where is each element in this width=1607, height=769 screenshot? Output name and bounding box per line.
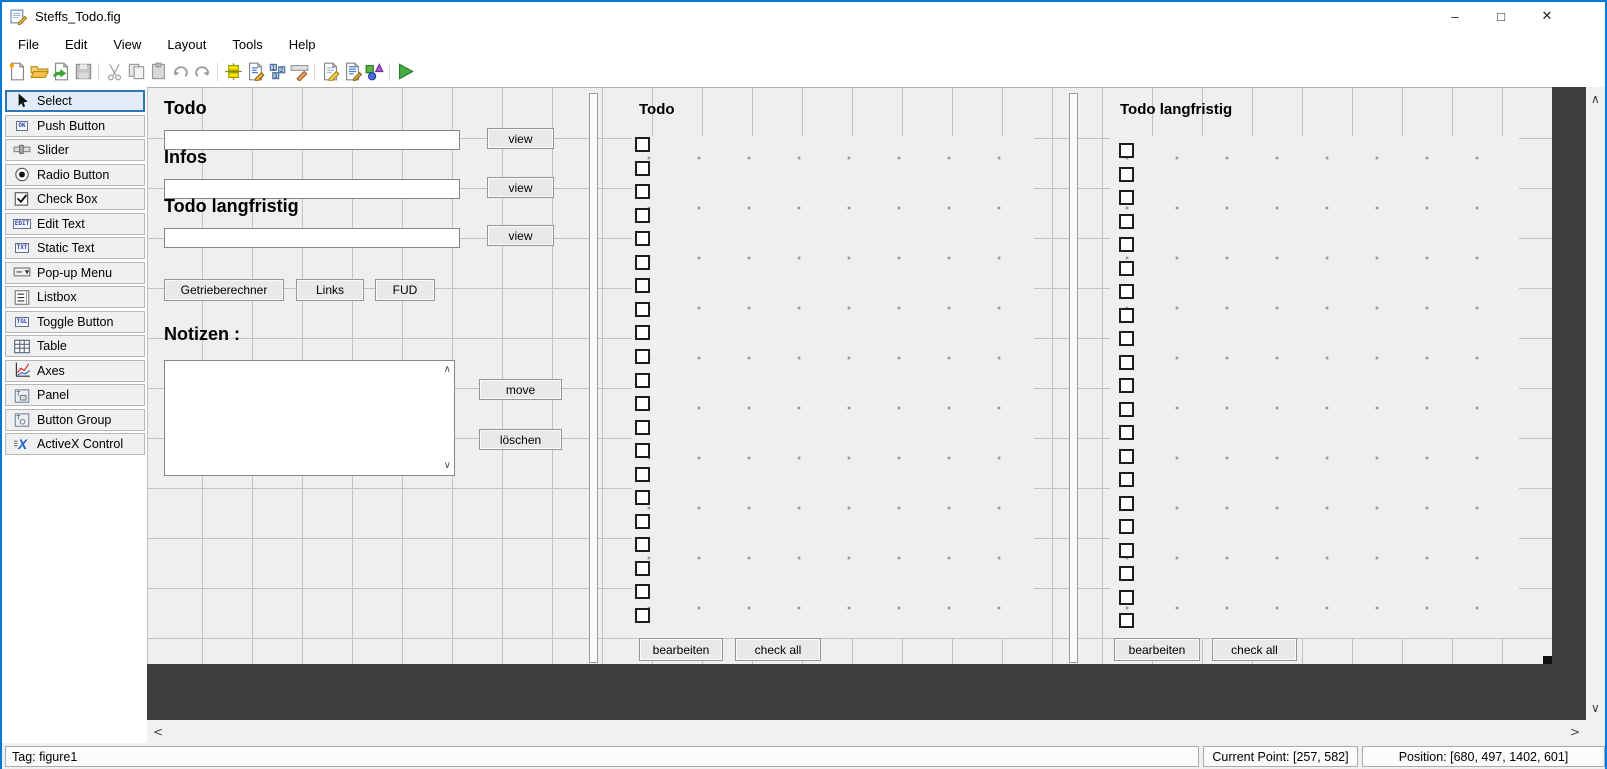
palette-item-edit-text[interactable]: EDITEdit Text bbox=[5, 213, 145, 235]
radio-button-icon bbox=[13, 167, 31, 182]
todo-checkbox[interactable] bbox=[635, 584, 650, 599]
menu-file[interactable]: File bbox=[5, 32, 52, 57]
palette-item-label: Panel bbox=[37, 388, 69, 402]
status-current-point: Current Point: [257, 582] bbox=[1203, 746, 1358, 767]
todo-long-check-all-button[interactable]: check all bbox=[1212, 638, 1297, 661]
status-position: Position: [680, 497, 1402, 601] bbox=[1362, 746, 1605, 767]
todo-long-checkbox[interactable] bbox=[1119, 331, 1134, 346]
listbox-scroll-up-icon[interactable]: ∧ bbox=[444, 365, 451, 375]
palette-item-panel[interactable]: TPanel bbox=[5, 384, 145, 406]
toolbar-separator bbox=[217, 63, 218, 81]
palette-item-slider[interactable]: Slider bbox=[5, 139, 145, 161]
toolbar: 123 bbox=[2, 58, 1605, 85]
palette-item-label: Check Box bbox=[37, 192, 97, 206]
toolbar-separator bbox=[389, 63, 390, 81]
svg-text:T: T bbox=[16, 415, 20, 422]
todo-long-checkbox[interactable] bbox=[1119, 402, 1134, 417]
palette-item-listbox[interactable]: Listbox bbox=[5, 286, 145, 308]
svg-text:2: 2 bbox=[279, 68, 282, 74]
todo-long-checkbox[interactable] bbox=[1119, 167, 1134, 182]
align-objects-icon[interactable] bbox=[222, 61, 244, 83]
menu-editor-icon[interactable] bbox=[244, 61, 266, 83]
todo-checkbox[interactable] bbox=[635, 514, 650, 529]
todo-checkbox[interactable] bbox=[635, 349, 650, 364]
popup-menu-icon bbox=[13, 265, 31, 280]
todo-checkbox[interactable] bbox=[635, 231, 650, 246]
todo-checkbox[interactable] bbox=[635, 467, 650, 482]
menu-edit[interactable]: Edit bbox=[52, 32, 100, 57]
push-button-icon: OK bbox=[13, 118, 31, 133]
run-icon[interactable] bbox=[394, 61, 416, 83]
svg-text:1: 1 bbox=[271, 66, 274, 72]
scroll-up-icon[interactable]: ∧ bbox=[1591, 93, 1600, 105]
infos-view-button[interactable]: view bbox=[487, 177, 554, 198]
activex-icon: X bbox=[13, 437, 31, 452]
todo-long-checkbox[interactable] bbox=[1119, 566, 1134, 581]
todo-long-checkbox[interactable] bbox=[1119, 613, 1134, 628]
save-icon bbox=[72, 61, 94, 83]
todo-checkbox[interactable] bbox=[635, 420, 650, 435]
scroll-down-icon[interactable]: ∨ bbox=[1591, 702, 1600, 714]
table-icon bbox=[13, 339, 31, 354]
palette-item-toggle-button[interactable]: TGLToggle Button bbox=[5, 311, 145, 333]
todo-long-bearbeiten-button[interactable]: bearbeiten bbox=[1114, 638, 1200, 661]
export-icon[interactable] bbox=[50, 61, 72, 83]
todo-panel-title[interactable]: Todo bbox=[639, 101, 675, 118]
palette-item-push-button[interactable]: OKPush Button bbox=[5, 115, 145, 137]
menu-layout[interactable]: Layout bbox=[154, 32, 219, 57]
todo-long-checkbox[interactable] bbox=[1119, 472, 1134, 487]
layout-area-background bbox=[147, 664, 1552, 720]
palette-item-static-text[interactable]: TXTStatic Text bbox=[5, 237, 145, 259]
palette-item-label: Toggle Button bbox=[37, 315, 113, 329]
palette-item-label: Listbox bbox=[37, 290, 77, 304]
palette-item-label: Pop-up Menu bbox=[37, 266, 112, 280]
todo-checkbox[interactable] bbox=[635, 561, 650, 576]
design-canvas[interactable]: Todo view Infos view Todo langfristig vi… bbox=[147, 87, 1552, 664]
panel-icon: T bbox=[13, 388, 31, 403]
app-icon bbox=[10, 8, 27, 25]
todo-long-view-button[interactable]: view bbox=[487, 225, 554, 246]
listbox-icon bbox=[13, 290, 31, 305]
todo-long-panel[interactable] bbox=[1110, 136, 1519, 638]
menu-help[interactable]: Help bbox=[276, 32, 329, 57]
todo-checkbox[interactable] bbox=[635, 161, 650, 176]
palette-item-label: Button Group bbox=[37, 413, 111, 427]
todo-checkbox[interactable] bbox=[635, 255, 650, 270]
palette-item-check-box[interactable]: Check Box bbox=[5, 188, 145, 210]
object-browser-icon[interactable] bbox=[363, 61, 385, 83]
status-bar: Tag: figure1 Current Point: [257, 582] P… bbox=[2, 743, 1605, 769]
property-inspector-icon[interactable] bbox=[341, 61, 363, 83]
todo-bearbeiten-button[interactable]: bearbeiten bbox=[639, 638, 723, 661]
todo-checkbox[interactable] bbox=[635, 184, 650, 199]
todo-long-checkbox[interactable] bbox=[1119, 378, 1134, 393]
infos-heading[interactable]: Infos bbox=[164, 147, 207, 168]
todo-checkbox[interactable] bbox=[635, 608, 650, 623]
menu-bar: FileEditViewLayoutToolsHelp bbox=[2, 31, 1605, 58]
axes-icon bbox=[13, 363, 31, 378]
scroll-left-icon[interactable]: < bbox=[153, 726, 163, 738]
scrollbar-corner bbox=[1586, 720, 1605, 743]
vertical-scrollbar[interactable]: ∧ ∨ bbox=[1586, 87, 1605, 720]
todo-long-edit-field[interactable] bbox=[164, 228, 460, 248]
todo-long-checkbox[interactable] bbox=[1119, 449, 1134, 464]
loeschen-button[interactable]: löschen bbox=[479, 429, 562, 450]
todo-checkbox[interactable] bbox=[635, 396, 650, 411]
todo-long-checkbox[interactable] bbox=[1119, 425, 1134, 440]
palette-item-axes[interactable]: Axes bbox=[5, 360, 145, 382]
vertical-separator-bar[interactable] bbox=[1069, 93, 1078, 663]
todo-panel[interactable] bbox=[632, 136, 1034, 638]
todo-checkbox[interactable] bbox=[635, 443, 650, 458]
todo-long-checkbox[interactable] bbox=[1119, 543, 1134, 558]
todo-long-checkbox[interactable] bbox=[1119, 143, 1134, 158]
todo-long-checkbox[interactable] bbox=[1119, 261, 1134, 276]
palette-item-label: Edit Text bbox=[37, 217, 85, 231]
check-box-icon bbox=[13, 192, 31, 207]
open-figure-icon[interactable] bbox=[28, 61, 50, 83]
slider-icon bbox=[13, 143, 31, 158]
listbox-scroll-down-icon[interactable]: ∨ bbox=[444, 461, 451, 471]
todo-long-checkbox[interactable] bbox=[1119, 519, 1134, 534]
toolbar-editor-icon[interactable] bbox=[288, 61, 310, 83]
toggle-button-icon: TGL bbox=[13, 314, 31, 329]
todo-view-button[interactable]: view bbox=[487, 128, 554, 149]
todo-checkbox[interactable] bbox=[635, 325, 650, 340]
todo-checkbox[interactable] bbox=[635, 537, 650, 552]
palette-item-table[interactable]: Table bbox=[5, 335, 145, 357]
palette-item-label: Push Button bbox=[37, 119, 105, 133]
redo-icon bbox=[191, 61, 213, 83]
palette-item-label: Slider bbox=[37, 143, 69, 157]
todo-long-checkbox[interactable] bbox=[1119, 214, 1134, 229]
links-button[interactable]: Links bbox=[296, 279, 364, 301]
todo-checkbox[interactable] bbox=[635, 373, 650, 388]
todo-checkbox[interactable] bbox=[635, 137, 650, 152]
palette-item-select[interactable]: Select bbox=[5, 90, 145, 112]
toolbar-separator bbox=[98, 63, 99, 81]
palette-item-label: Table bbox=[37, 339, 67, 353]
maximize-button[interactable]: □ bbox=[1478, 2, 1524, 30]
menu-view[interactable]: View bbox=[100, 32, 154, 57]
svg-text:X: X bbox=[17, 437, 28, 452]
fud-button[interactable]: FUD bbox=[375, 279, 435, 301]
button-group-icon: T bbox=[13, 412, 31, 427]
todo-long-checkbox[interactable] bbox=[1119, 284, 1134, 299]
todo-checkbox[interactable] bbox=[635, 208, 650, 223]
cut-icon bbox=[103, 61, 125, 83]
palette-item-button-group[interactable]: TButton Group bbox=[5, 409, 145, 431]
toolbar-separator bbox=[314, 63, 315, 81]
paste-icon bbox=[147, 61, 169, 83]
todo-long-panel-title[interactable]: Todo langfristig bbox=[1120, 101, 1232, 118]
palette-item-label: ActiveX Control bbox=[37, 437, 123, 451]
status-tag: Tag: figure1 bbox=[5, 746, 1199, 767]
layout-area-background bbox=[1552, 87, 1587, 720]
todo-checkbox[interactable] bbox=[635, 302, 650, 317]
close-button[interactable]: ✕ bbox=[1524, 2, 1570, 30]
menu-tools[interactable]: Tools bbox=[219, 32, 275, 57]
tool-palette: SelectOKPush ButtonSliderRadio ButtonChe… bbox=[5, 90, 145, 458]
todo-long-heading[interactable]: Todo langfristig bbox=[164, 196, 299, 217]
todo-long-checkbox[interactable] bbox=[1119, 237, 1134, 252]
editor-icon[interactable] bbox=[319, 61, 341, 83]
todo-long-checkbox[interactable] bbox=[1119, 496, 1134, 511]
new-figure-icon[interactable] bbox=[6, 61, 28, 83]
horizontal-scrollbar[interactable]: < > bbox=[147, 720, 1586, 743]
undo-icon bbox=[169, 61, 191, 83]
scroll-right-icon[interactable]: > bbox=[1570, 726, 1580, 738]
palette-item-label: Static Text bbox=[37, 241, 94, 255]
todo-heading[interactable]: Todo bbox=[164, 98, 207, 119]
todo-long-checkbox[interactable] bbox=[1119, 308, 1134, 323]
notizen-listbox[interactable]: ∧ ∨ bbox=[164, 360, 455, 476]
copy-icon bbox=[125, 61, 147, 83]
notizen-heading[interactable]: Notizen : bbox=[164, 324, 240, 345]
todo-edit-field[interactable] bbox=[164, 130, 460, 150]
palette-item-radio-button[interactable]: Radio Button bbox=[5, 164, 145, 186]
edit-text-icon: EDIT bbox=[13, 216, 31, 231]
vertical-separator-bar[interactable] bbox=[589, 93, 598, 663]
getrieberechner-button[interactable]: Getrieberechner bbox=[164, 279, 284, 301]
todo-long-checkbox[interactable] bbox=[1119, 190, 1134, 205]
move-button[interactable]: move bbox=[479, 379, 562, 400]
tab-order-editor-icon[interactable]: 123 bbox=[266, 61, 288, 83]
palette-item-activex-control[interactable]: XActiveX Control bbox=[5, 433, 145, 455]
todo-checkbox[interactable] bbox=[635, 278, 650, 293]
todo-checkbox[interactable] bbox=[635, 490, 650, 505]
minimize-button[interactable]: – bbox=[1432, 2, 1478, 30]
palette-item-label: Axes bbox=[37, 364, 65, 378]
palette-item-label: Select bbox=[37, 94, 72, 108]
window-title: Steffs_Todo.fig bbox=[35, 9, 121, 24]
todo-long-checkbox[interactable] bbox=[1119, 355, 1134, 370]
cursor-icon bbox=[13, 94, 31, 109]
todo-check-all-button[interactable]: check all bbox=[735, 638, 821, 661]
todo-long-checkbox[interactable] bbox=[1119, 590, 1134, 605]
palette-item-pop-up-menu[interactable]: Pop-up Menu bbox=[5, 262, 145, 284]
static-text-icon: TXT bbox=[13, 241, 31, 256]
palette-item-label: Radio Button bbox=[37, 168, 109, 182]
title-bar: Steffs_Todo.fig – □ ✕ bbox=[2, 2, 1605, 30]
